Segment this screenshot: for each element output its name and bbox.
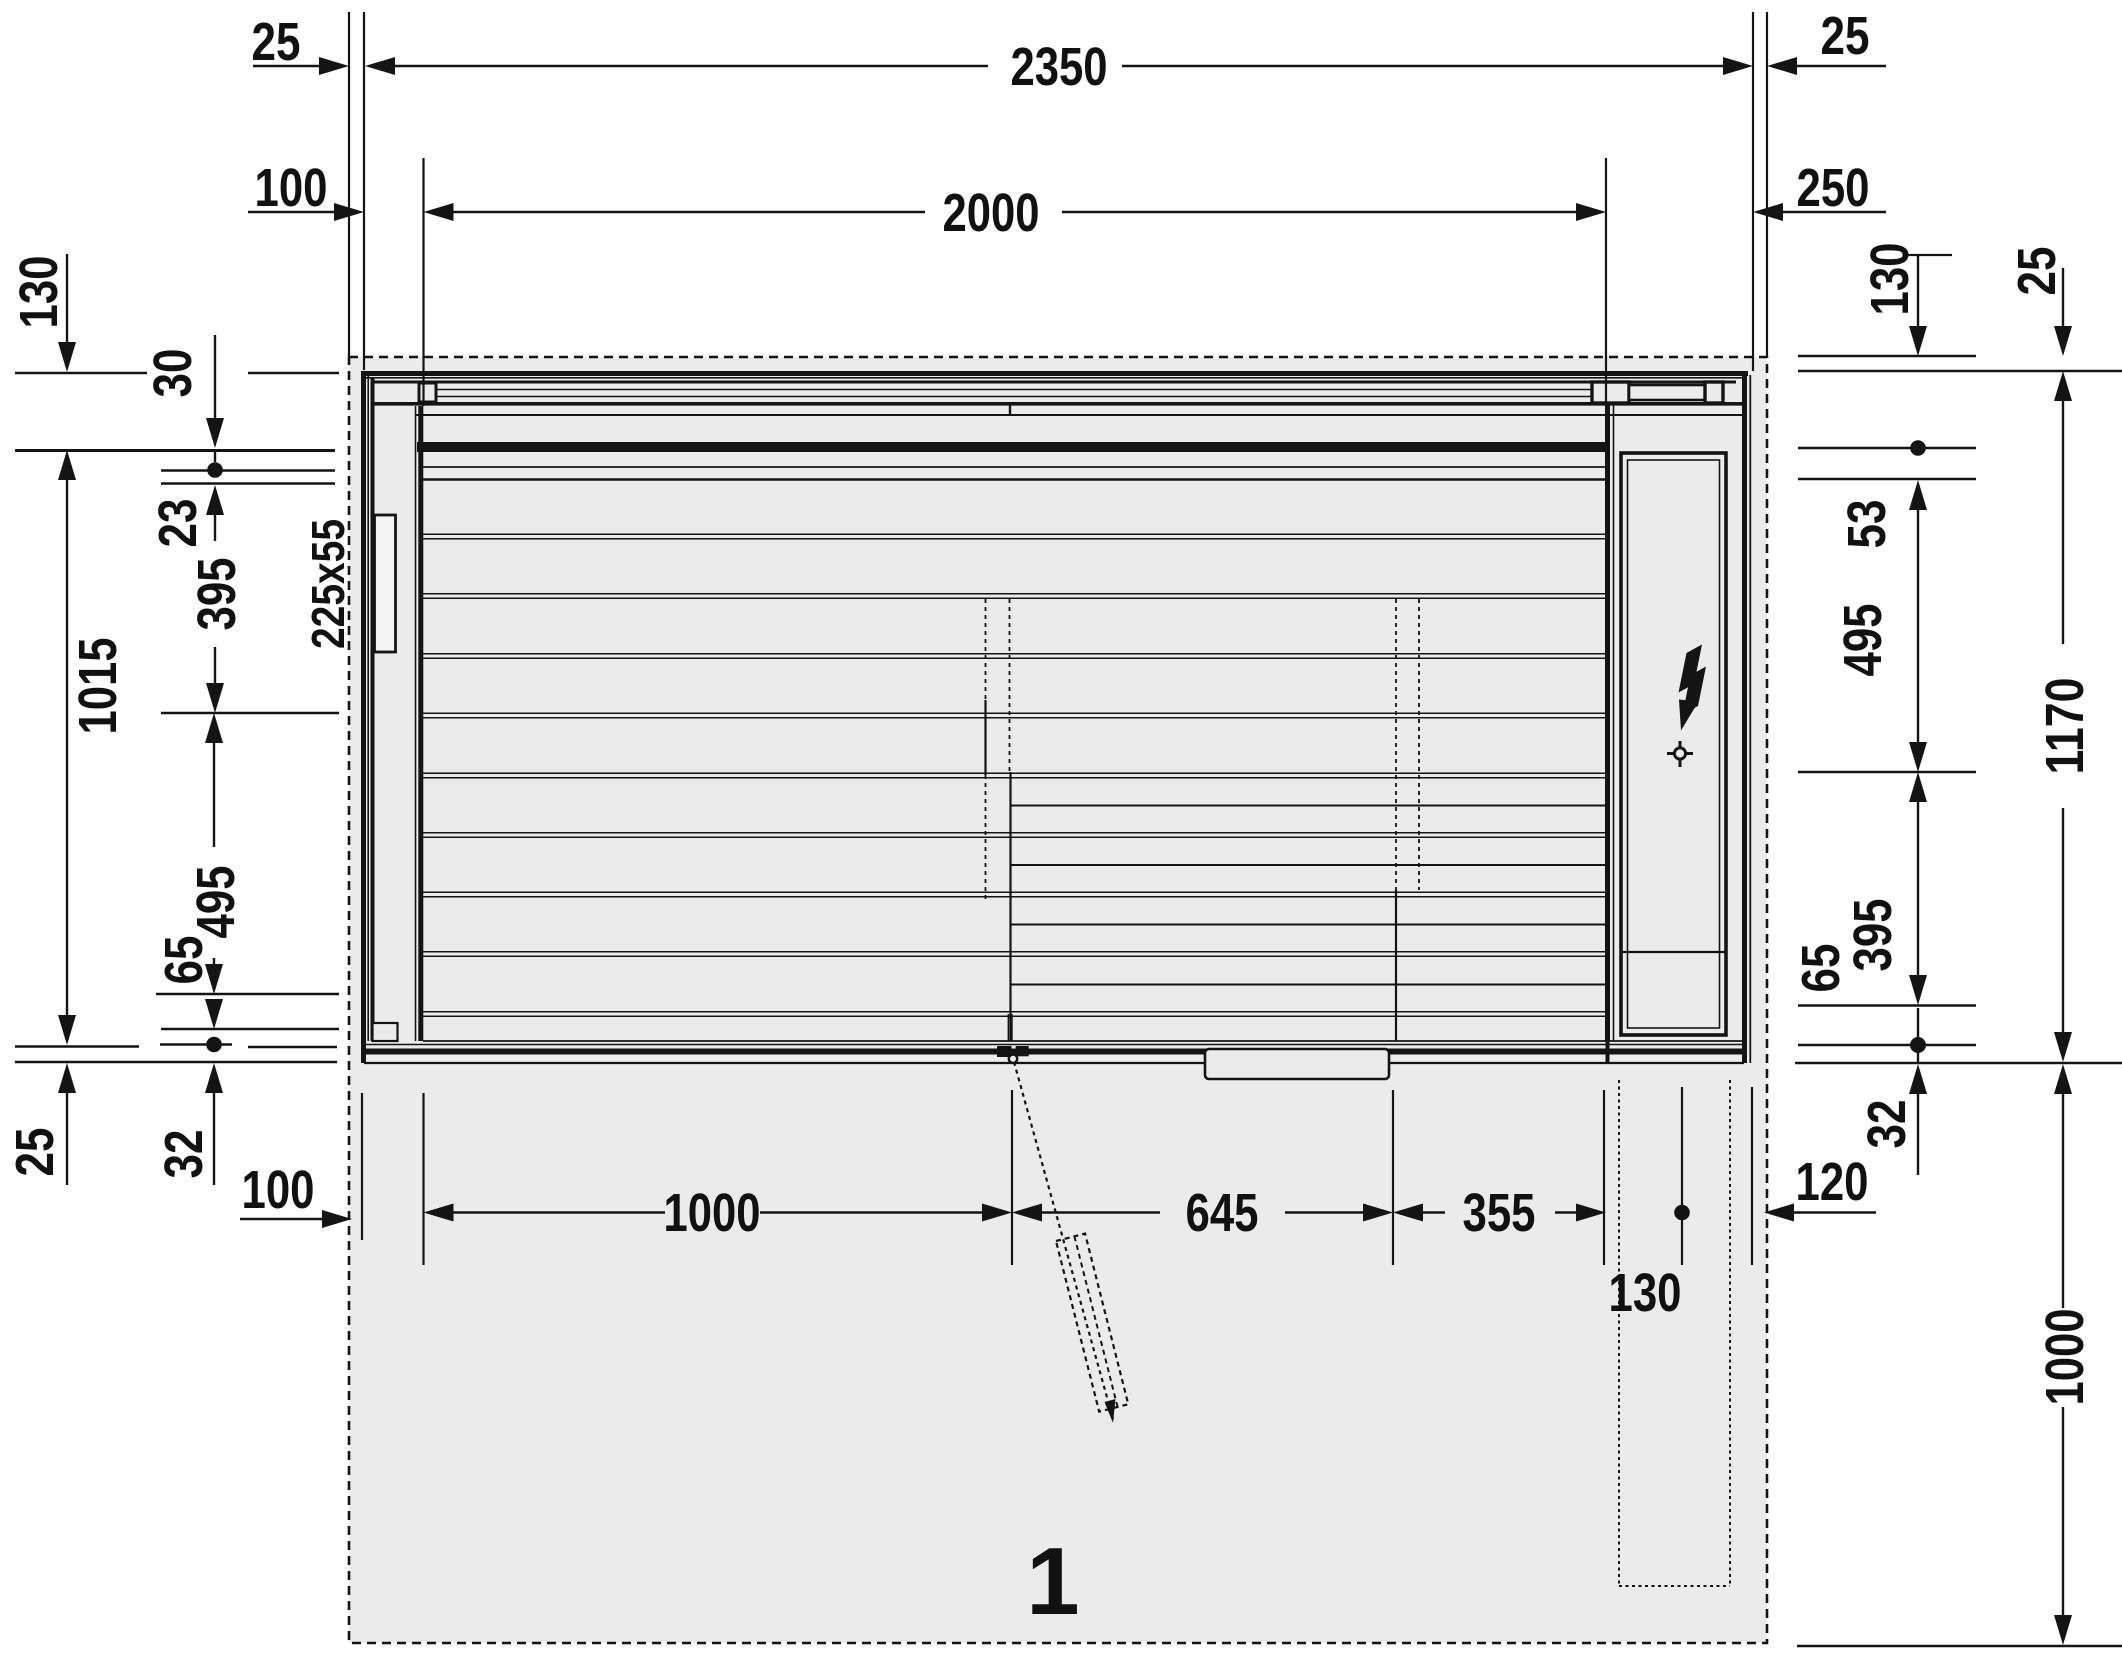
svg-text:32: 32 xyxy=(1857,1100,1917,1149)
svg-text:100: 100 xyxy=(242,1160,315,1220)
svg-text:25: 25 xyxy=(5,1128,65,1177)
svg-text:495: 495 xyxy=(186,866,246,939)
svg-text:100: 100 xyxy=(255,158,328,218)
svg-text:25: 25 xyxy=(1821,6,1870,66)
svg-text:1170: 1170 xyxy=(2035,678,2095,775)
svg-text:25: 25 xyxy=(2007,247,2067,296)
svg-text:23: 23 xyxy=(148,499,208,548)
svg-text:130: 130 xyxy=(1860,243,1920,316)
svg-text:32: 32 xyxy=(154,1130,214,1179)
svg-text:2000: 2000 xyxy=(943,183,1040,243)
svg-text:355: 355 xyxy=(1463,1183,1536,1243)
svg-text:30: 30 xyxy=(143,349,203,398)
svg-text:645: 645 xyxy=(1186,1183,1259,1243)
svg-text:395: 395 xyxy=(1843,899,1903,972)
svg-text:225x55: 225x55 xyxy=(302,519,354,649)
svg-text:53: 53 xyxy=(1837,500,1897,549)
svg-text:495: 495 xyxy=(1833,604,1893,677)
svg-text:1000: 1000 xyxy=(2035,1309,2095,1406)
svg-text:1: 1 xyxy=(1026,1528,1079,1635)
svg-text:395: 395 xyxy=(187,558,247,631)
svg-text:25: 25 xyxy=(252,12,301,72)
svg-text:250: 250 xyxy=(1797,158,1870,218)
svg-text:1000: 1000 xyxy=(664,1183,761,1243)
svg-text:2350: 2350 xyxy=(1011,37,1108,97)
svg-text:130: 130 xyxy=(9,256,69,329)
svg-text:130: 130 xyxy=(1609,1263,1682,1323)
svg-text:1015: 1015 xyxy=(68,638,128,735)
svg-text:120: 120 xyxy=(1796,1152,1869,1212)
svg-text:65: 65 xyxy=(154,936,214,985)
svg-text:65: 65 xyxy=(1791,944,1851,993)
